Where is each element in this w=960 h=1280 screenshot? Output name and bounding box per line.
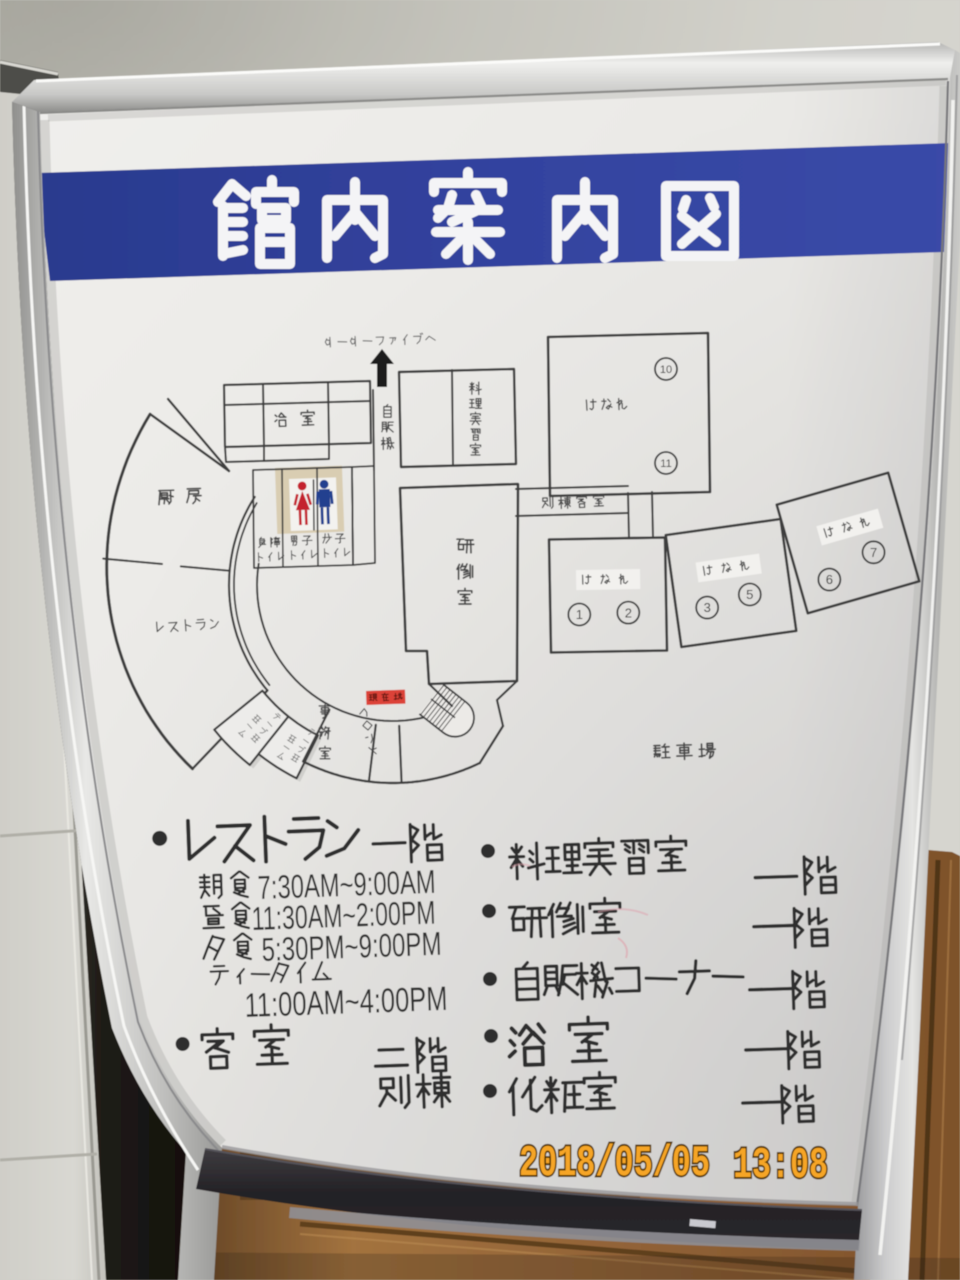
svg-text:10: 10 [660,364,672,376]
svg-text:13:08: 13:08 [733,1141,828,1191]
svg-text:2018/05/05: 2018/05/05 [519,1139,710,1189]
svg-text:6: 6 [826,572,833,587]
svg-text:1: 1 [576,607,583,622]
svg-text:5: 5 [746,587,753,602]
svg-text:2: 2 [625,605,632,620]
svg-text:5:30PM~9:00PM: 5:30PM~9:00PM [261,925,442,968]
svg-text:7: 7 [870,545,877,560]
svg-text:11:00AM~4:00PM: 11:00AM~4:00PM [244,980,448,1025]
svg-text:11: 11 [660,458,671,470]
svg-text:3: 3 [704,600,711,615]
